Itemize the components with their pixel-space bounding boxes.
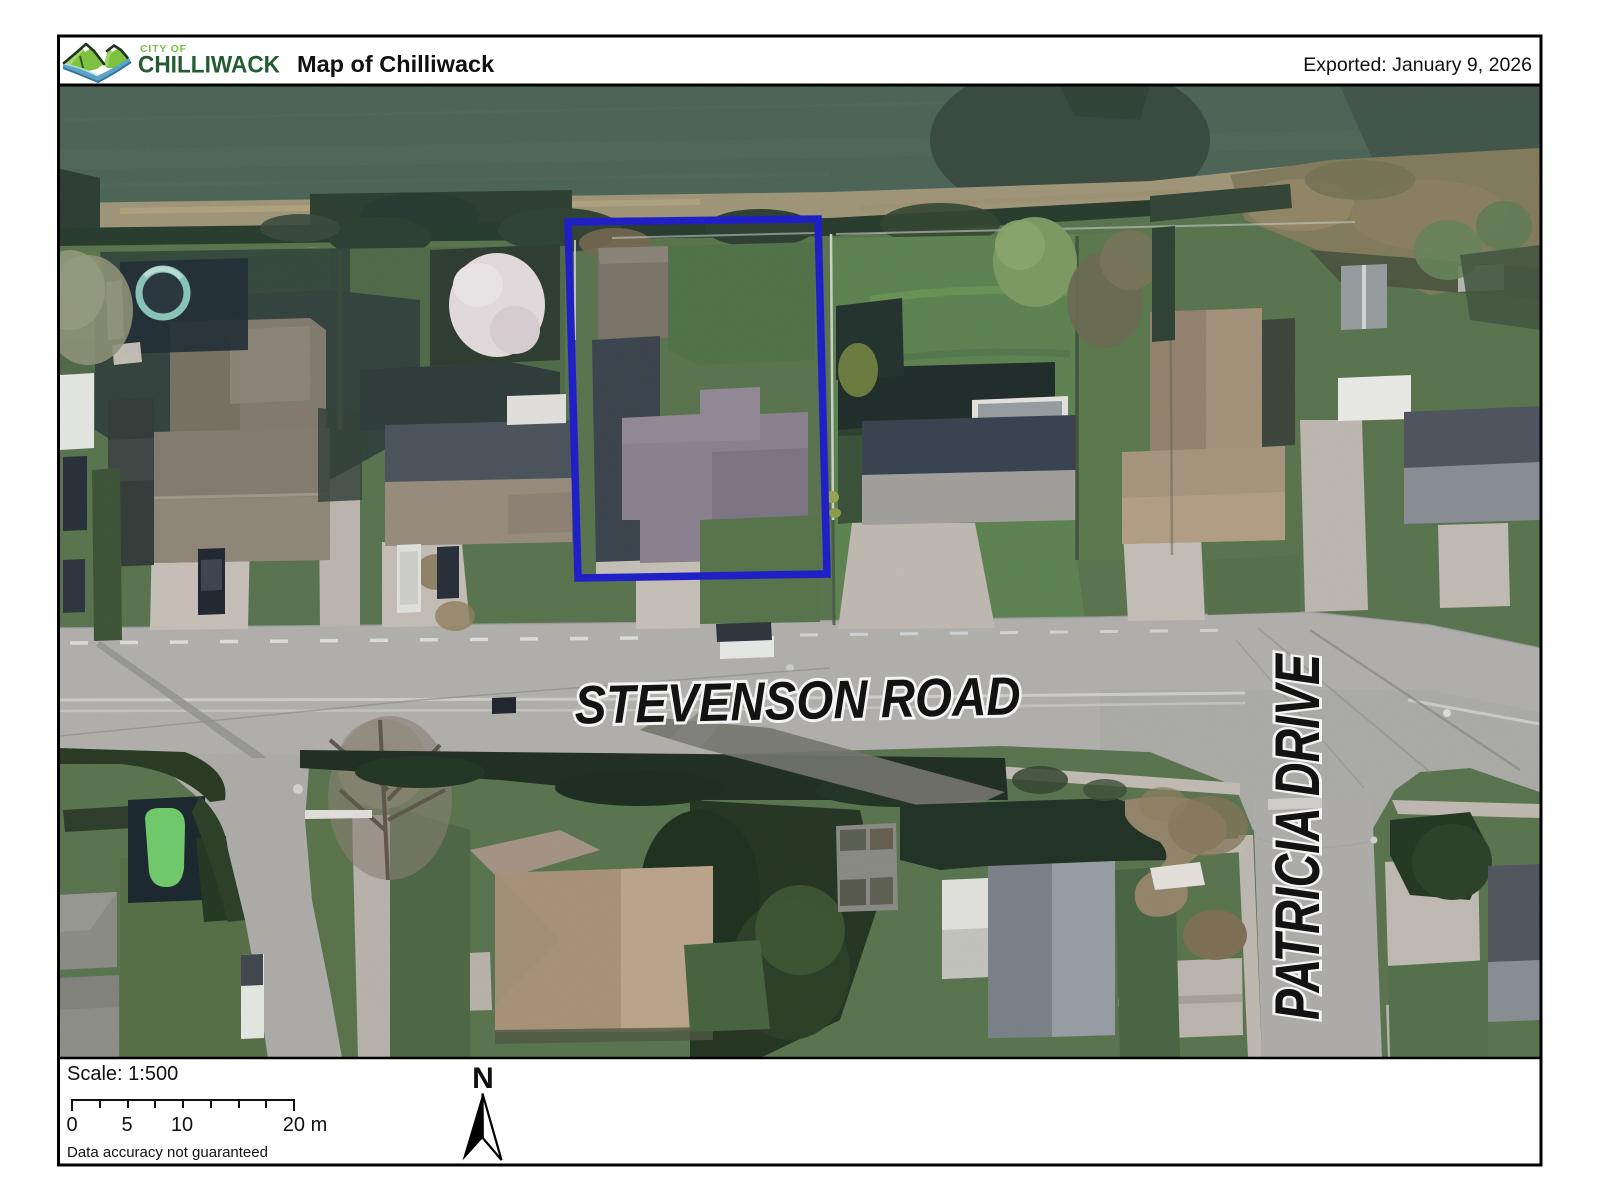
svg-text:Map of Chilliwack: Map of Chilliwack: [297, 51, 495, 77]
svg-text:Scale: 1:500: Scale: 1:500: [67, 1063, 178, 1085]
svg-text:Exported: January 9, 2026: Exported: January 9, 2026: [1303, 54, 1532, 76]
svg-text:0: 0: [66, 1114, 77, 1136]
svg-text:CHILLIWACK: CHILLIWACK: [138, 52, 281, 79]
svg-text:20 m: 20 m: [283, 1114, 327, 1136]
svg-text:5: 5: [121, 1114, 132, 1136]
svg-text:10: 10: [171, 1114, 193, 1136]
svg-text:N: N: [472, 1062, 494, 1095]
svg-text:Data accuracy not guaranteed: Data accuracy not guaranteed: [67, 1144, 268, 1161]
